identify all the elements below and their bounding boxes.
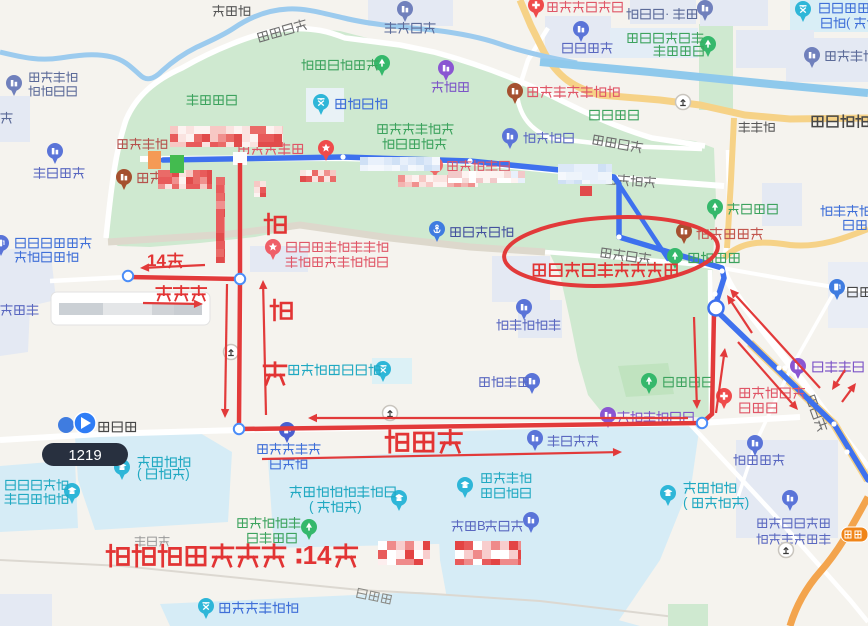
svg-text:·: · bbox=[665, 6, 669, 21]
svg-text:14: 14 bbox=[303, 540, 332, 570]
svg-text:(: ( bbox=[309, 499, 314, 514]
svg-text:(: ( bbox=[137, 466, 142, 481]
svg-text:): ) bbox=[745, 495, 750, 510]
svg-text:): ) bbox=[185, 466, 190, 481]
svg-text:1219: 1219 bbox=[68, 447, 101, 464]
svg-text:): ) bbox=[357, 499, 362, 514]
svg-text:(: ( bbox=[683, 495, 688, 510]
svg-text:(: ( bbox=[846, 15, 851, 30]
svg-text:14: 14 bbox=[147, 251, 166, 270]
svg-text:B: B bbox=[477, 518, 486, 533]
